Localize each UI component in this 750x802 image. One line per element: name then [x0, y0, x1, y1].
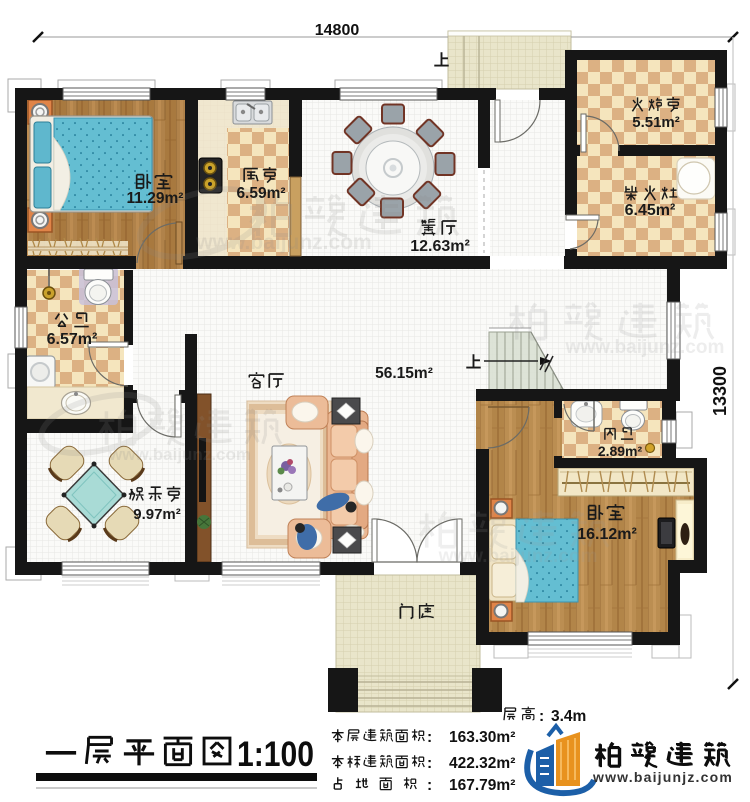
svg-text:www.baijunz.com: www.baijunz.com — [108, 445, 251, 464]
svg-text:www.baijunz.com: www.baijunz.com — [195, 231, 371, 254]
svg-text:163.30m²: 163.30m² — [449, 729, 515, 746]
svg-text:1:100: 1:100 — [237, 735, 314, 774]
svg-text:167.79m²: 167.79m² — [449, 777, 515, 794]
svg-text::: : — [427, 729, 432, 746]
svg-text:6.57m²: 6.57m² — [47, 331, 98, 348]
svg-text:9.97m²: 9.97m² — [133, 506, 181, 523]
svg-text:16.12m²: 16.12m² — [577, 526, 637, 543]
svg-text::: : — [427, 755, 432, 772]
svg-text:56.15m²: 56.15m² — [375, 365, 433, 382]
svg-text:3.4m: 3.4m — [551, 708, 586, 725]
svg-text:11.29m²: 11.29m² — [127, 190, 184, 207]
svg-text:12.63m²: 12.63m² — [410, 238, 470, 255]
svg-text::: : — [539, 708, 544, 725]
svg-text:13300: 13300 — [710, 366, 730, 416]
svg-text:6.45m²: 6.45m² — [625, 202, 676, 219]
svg-text:6.59m²: 6.59m² — [236, 185, 285, 202]
svg-text:www.baijunz.com: www.baijunz.com — [565, 337, 725, 358]
svg-text:www.baijunjz.com: www.baijunjz.com — [592, 769, 733, 785]
svg-text:2.89m²: 2.89m² — [598, 443, 643, 459]
svg-text:www.baijunz.com: www.baijunz.com — [438, 546, 598, 567]
svg-text:5.51m²: 5.51m² — [632, 114, 680, 131]
svg-text::: : — [427, 777, 432, 794]
svg-text:14800: 14800 — [315, 22, 360, 39]
svg-text:422.32m²: 422.32m² — [449, 755, 515, 772]
